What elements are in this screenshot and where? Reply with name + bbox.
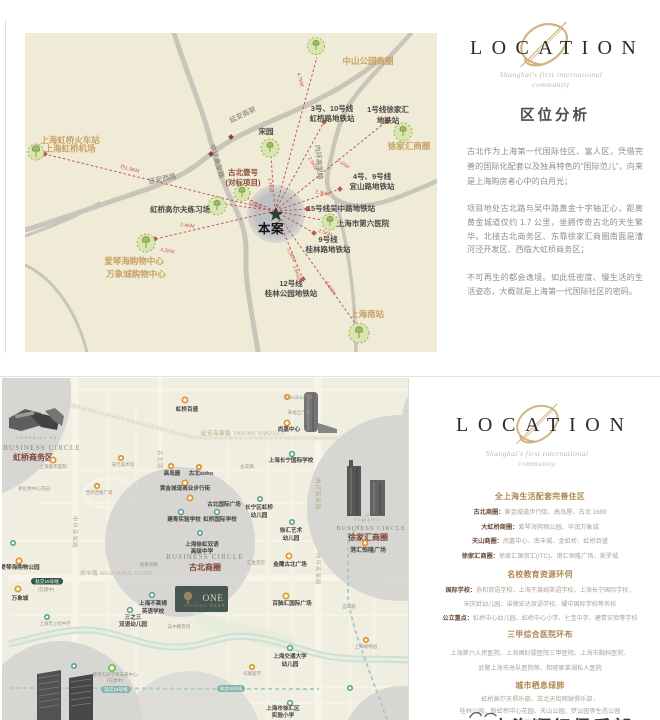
svg-text:爱琴海购物公园: 爱琴海购物公园 — [2, 563, 40, 571]
svg-text:万象城购物中心: 万象城购物中心 — [105, 269, 166, 279]
svg-text:虹桥国际学校: 虹桥国际学校 — [203, 515, 237, 523]
svg-text:内环高架路: 内环高架路 — [314, 553, 322, 586]
svg-text:上海市徐汇区: 上海市徐汇区 — [266, 704, 300, 712]
svg-text:上海植物园: 上海植物园 — [355, 643, 378, 650]
svg-text:ONE: ONE — [202, 594, 223, 604]
svg-text:(在建中): (在建中) — [38, 586, 55, 593]
svg-text:轨交15号线: 轨交15号线 — [35, 578, 59, 585]
svg-text:宋元美术馆: 宋元美术馆 — [112, 461, 135, 468]
svg-text:金鹰古北广场: 金鹰古北广场 — [272, 560, 307, 568]
svg-text:程家桥路: 程家桥路 — [140, 561, 158, 568]
svg-text:建青实验学校: 建青实验学校 — [166, 515, 201, 523]
svg-text:BUSINESS CIRCLE: BUSINESS CIRCLE — [3, 444, 81, 452]
svg-text:上海长宁国际学校: 上海长宁国际学校 — [269, 456, 314, 464]
svg-text:吴中路雪场: 吴中路雪场 — [168, 623, 191, 630]
svg-text:HONGQIAO BD: HONGQIAO BD — [16, 436, 58, 440]
svg-text:港汇恒隆广场: 港汇恒隆广场 — [350, 546, 386, 554]
svg-text:爱琴海购物中心: 爱琴海购物中心 — [104, 256, 164, 266]
svg-text:(对标项目): (对标项目) — [226, 177, 261, 187]
svg-text:来福士广场: 来福士广场 — [288, 409, 311, 416]
svg-text:古北壹号: 古北壹号 — [228, 167, 258, 177]
svg-text:高级中学: 高级中学 — [191, 547, 214, 555]
svg-text:上海嘉禾医院: 上海嘉禾医院 — [40, 463, 67, 470]
svg-text:宜山路地铁站: 宜山路地铁站 — [350, 181, 395, 191]
svg-text:soho天山广场: soho天山广场 — [285, 394, 313, 401]
svg-text:XUJIAHUI: XUJIAHUI — [354, 518, 382, 522]
svg-text:上海南站: 上海南站 — [350, 309, 385, 319]
svg-text:百脑汇国际广场: 百脑汇国际广场 — [272, 599, 312, 607]
svg-text:双语幼儿园: 双语幼儿园 — [119, 620, 147, 628]
svg-text:12号线: 12号线 — [279, 278, 303, 288]
svg-text:上海徐虹双语: 上海徐虹双语 — [185, 540, 219, 548]
svg-text:实验小学: 实验小学 — [272, 711, 295, 719]
svg-text:幼儿园: 幼儿园 — [283, 534, 300, 542]
svg-text:4号、9号线: 4号、9号线 — [353, 171, 392, 181]
svg-text:古北国际广场: 古北国际广场 — [207, 500, 241, 508]
svg-text:虹桥商务区: 虹桥商务区 — [13, 452, 53, 462]
svg-text:上海交通大学: 上海交通大学 — [273, 652, 307, 660]
svg-text:本案: 本案 — [258, 221, 284, 236]
svg-text:内环高架路: 内环高架路 — [314, 478, 322, 511]
svg-text:黄金城道商业步行街: 黄金城道商业步行街 — [160, 484, 211, 492]
svg-text:幼儿园: 幼儿园 — [282, 660, 299, 668]
svg-text:上海市第六医院: 上海市第六医院 — [337, 218, 390, 228]
svg-text:汇金百货: 汇金百货 — [247, 559, 265, 566]
svg-text:SHANGHAI 古北壹号: SHANGHAI 古北壹号 — [184, 603, 226, 608]
svg-text:BUSINESS CIRCLE: BUSINESS CIRCLE — [336, 525, 406, 532]
svg-text:徐家汇商圈: 徐家汇商圈 — [387, 141, 431, 151]
svg-text:上海虹桥机场: 上海虹桥机场 — [44, 144, 96, 154]
svg-text:长宁区虹桥: 长宁区虹桥 — [245, 503, 273, 511]
svg-text:宋园: 宋园 — [259, 126, 274, 136]
svg-text:中环高架路: 中环高架路 — [71, 516, 79, 549]
svg-text:建青实验学校未来中心: 建青实验学校未来中心 — [93, 671, 138, 678]
svg-text:英语学校: 英语学校 — [142, 607, 165, 615]
svg-text:古北soho: 古北soho — [189, 469, 214, 477]
svg-text:桂林路地铁站: 桂林路地铁站 — [305, 244, 351, 254]
svg-text:尚嘉中心: 尚嘉中心 — [278, 425, 301, 433]
svg-text:上海市上虹中学: 上海市上虹中学 — [39, 620, 71, 627]
svg-text:15号线吴中路地铁站: 15号线吴中路地铁站 — [307, 203, 376, 213]
svg-text:1号线徐家汇: 1号线徐家汇 — [367, 104, 409, 114]
svg-text:新虹桥中心花园: 新虹桥中心花园 — [18, 485, 50, 492]
svg-text:三之三: 三之三 — [125, 613, 142, 621]
svg-text:上海不莱姆: 上海不莱姆 — [139, 599, 167, 607]
svg-text:中山公园商圈: 中山公园商圈 — [342, 56, 393, 66]
svg-text:地铁站: 地铁站 — [377, 115, 400, 125]
svg-text:万象城: 万象城 — [11, 594, 29, 602]
svg-text:虹桥高尔夫练习场: 虹桥高尔夫练习场 — [150, 204, 210, 214]
svg-text:吴中路 WUZHONG ROAD: 吴中路 WUZHONG ROAD — [80, 569, 152, 577]
svg-text:徐家汇商圈: 徐家汇商圈 — [347, 532, 388, 542]
svg-text:虹桥路地铁站: 虹桥路地铁站 — [310, 113, 355, 123]
svg-text:轨交15号线: 轨交15号线 — [220, 685, 242, 692]
svg-text:宜山路: 宜山路 — [342, 603, 356, 610]
svg-text:古北路: 古北路 — [156, 450, 164, 470]
svg-text:古北商圈: 古北商圈 — [189, 562, 221, 572]
svg-text:桂林公园地铁站: 桂林公园地铁站 — [264, 288, 318, 298]
svg-text:西郊百联广场: 西郊百联广场 — [86, 489, 113, 496]
svg-text:华联超市: 华联超市 — [243, 670, 261, 677]
svg-text:(在建中): (在建中) — [107, 677, 124, 684]
svg-text:3号、10号线: 3号、10号线 — [311, 103, 354, 113]
svg-text:轨交15号线: 轨交15号线 — [104, 686, 128, 693]
svg-text:徐汇艺术: 徐汇艺术 — [279, 526, 303, 534]
svg-text:幼儿园: 幼儿园 — [251, 511, 268, 519]
svg-text:高岛屋: 高岛屋 — [164, 469, 181, 477]
svg-text:虹桥百盛: 虹桥百盛 — [176, 405, 199, 413]
svg-text:延安高架路 YAN'AN VIADUCT: 延安高架路 YAN'AN VIADUCT — [201, 429, 285, 437]
svg-text:古羊路: 古羊路 — [240, 463, 254, 470]
